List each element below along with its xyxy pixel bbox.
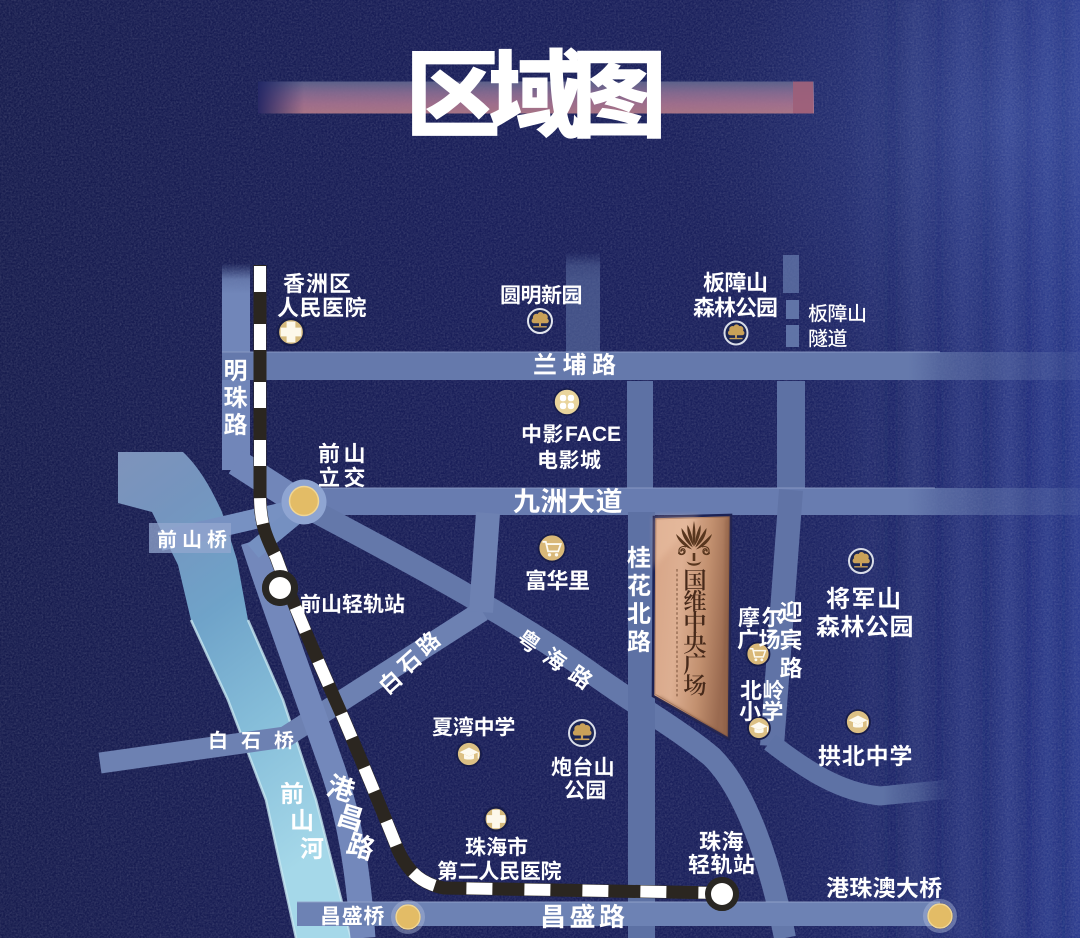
svg-text:FACE: FACE: [565, 423, 621, 446]
